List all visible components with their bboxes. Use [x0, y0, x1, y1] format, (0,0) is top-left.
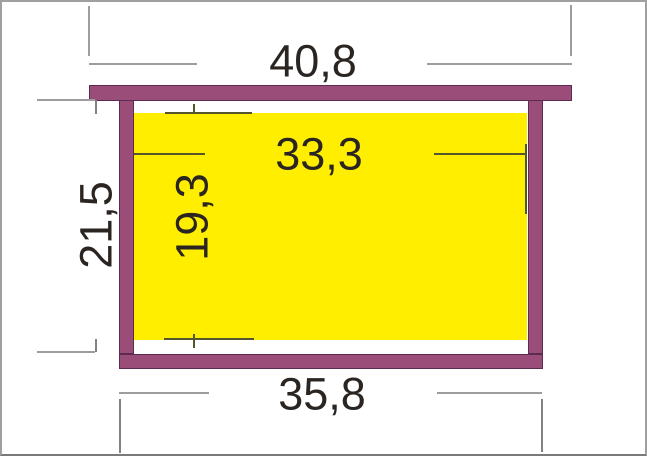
comb-height-tick-bottom: [193, 334, 195, 348]
top-width-extension-line-left: [88, 6, 90, 56]
side-height-tick-top: [95, 100, 97, 114]
top-width-label: 40,8: [269, 39, 357, 84]
top-width-dimension-line-left: [89, 63, 197, 65]
comb-height-label: 19,3: [170, 173, 215, 261]
bottom-width-dimension-line-left: [119, 392, 209, 394]
top-width-dimension-line-right: [427, 63, 572, 65]
side-height-tick-bottom: [95, 339, 97, 352]
bottom-width-extension-line-left: [119, 399, 121, 453]
bottom-width-extension-line-right: [541, 399, 543, 452]
inner-width-label: 33,3: [275, 132, 363, 177]
inner-width-dimension-line-left: [134, 153, 205, 155]
side-height-extension-line-top: [37, 99, 95, 101]
right-side-bar: [528, 99, 543, 354]
comb-height-extension-line-top: [165, 112, 252, 114]
comb-height-tick-top: [193, 104, 195, 114]
inner-width-dimension-line-right: [434, 153, 527, 155]
bottom-bar: [119, 354, 543, 369]
frame-section-drawing: 40,8 21,5 19,3 33,3 35,8: [0, 0, 647, 456]
side-height-extension-line-bottom: [37, 351, 95, 353]
bottom-width-dimension-line-right: [437, 392, 542, 394]
inner-width-extension-line-right: [525, 144, 527, 214]
top-width-extension-line-right: [570, 5, 572, 56]
side-height-label: 21,5: [74, 181, 119, 269]
comb-height-extension-line-bottom: [164, 338, 254, 340]
top-bar: [89, 85, 572, 101]
bottom-width-label: 35,8: [278, 372, 366, 417]
